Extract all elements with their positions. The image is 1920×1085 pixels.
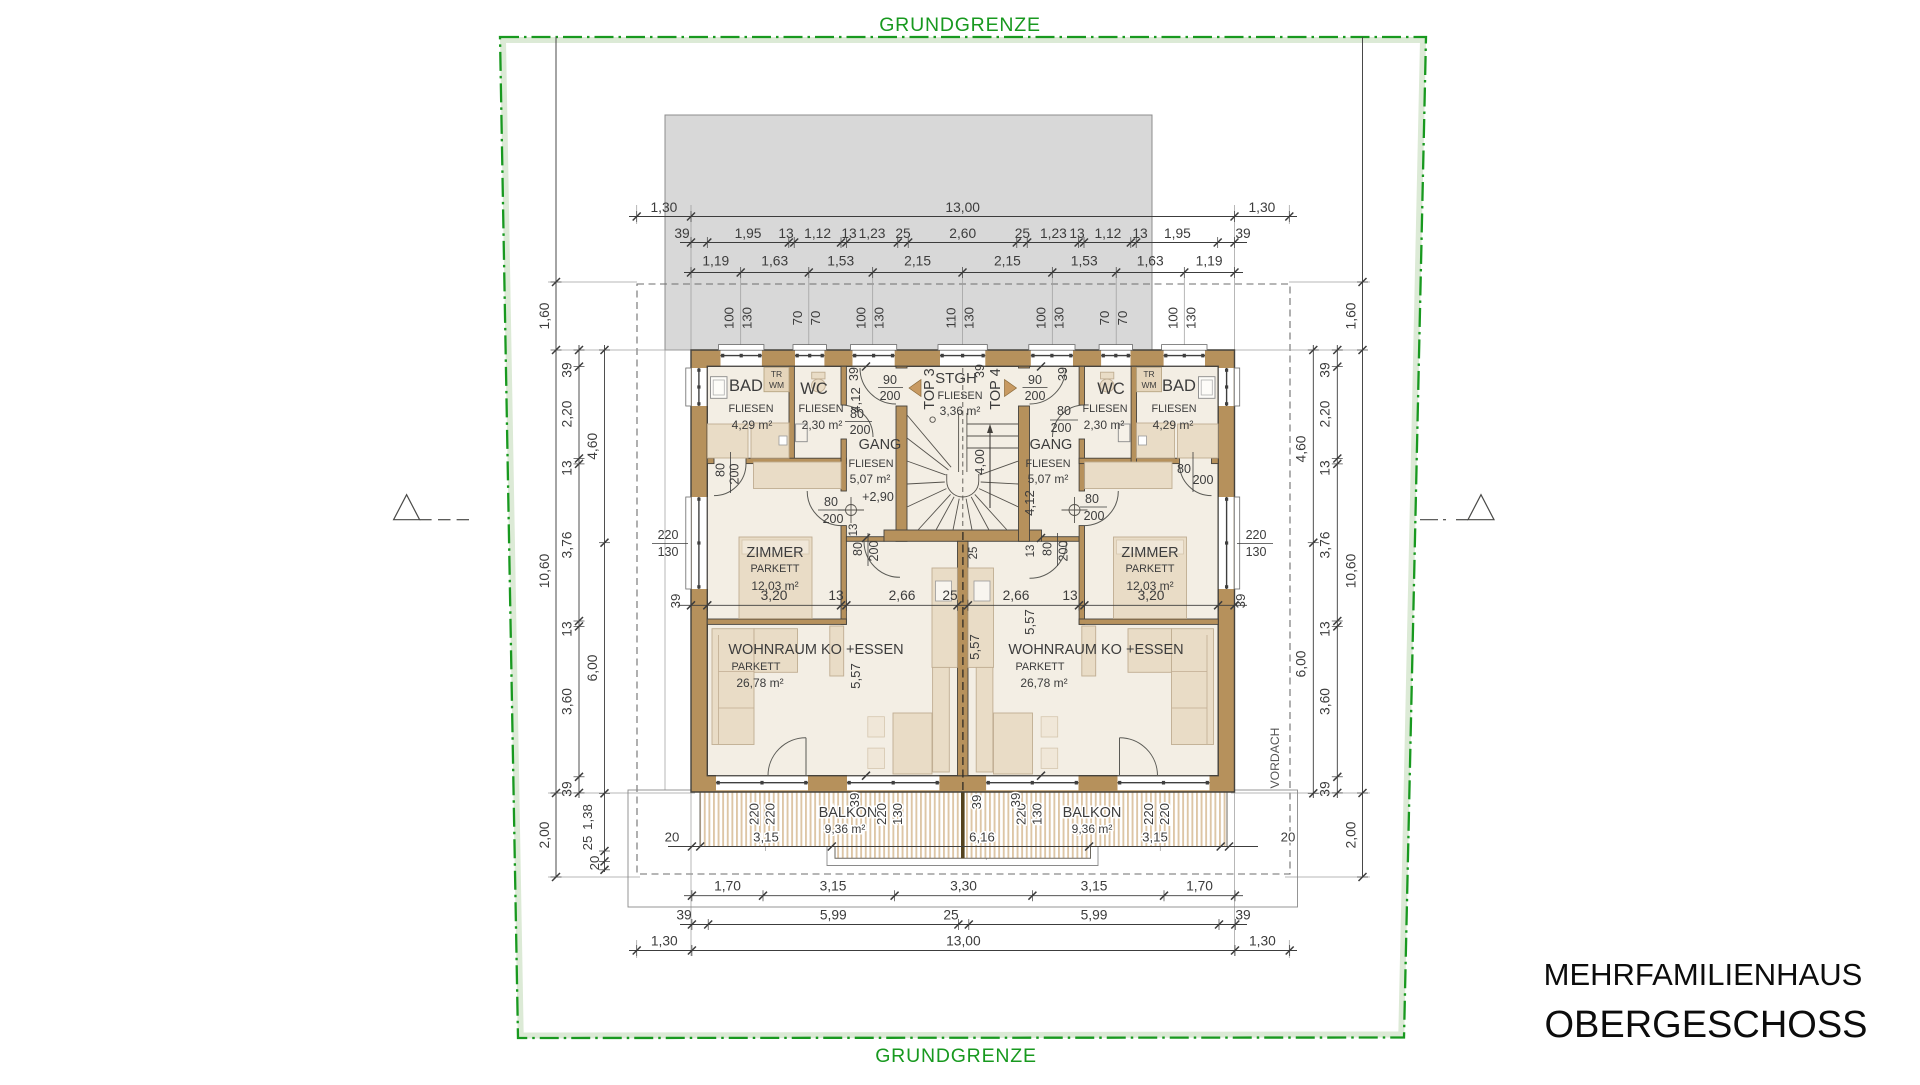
svg-text:6,00: 6,00 [585,654,600,681]
svg-text:80: 80 [851,542,865,556]
svg-text:110: 110 [944,307,959,328]
svg-text:1,30: 1,30 [651,934,678,949]
svg-text:20: 20 [587,856,602,871]
svg-text:1,63: 1,63 [1137,254,1164,269]
svg-text:GRUNDGRENZE: GRUNDGRENZE [875,1045,1037,1067]
svg-text:5,57: 5,57 [967,634,982,660]
svg-text:FLIESEN: FLIESEN [1025,458,1070,470]
svg-text:FLIESEN: FLIESEN [1082,403,1127,415]
svg-text:4,29 m²: 4,29 m² [1153,418,1194,432]
svg-text:FLIESEN: FLIESEN [798,403,843,415]
svg-text:39: 39 [1056,367,1070,381]
svg-text:13,00: 13,00 [946,934,981,949]
svg-text:10,60: 10,60 [537,553,552,588]
svg-text:3,60: 3,60 [1318,688,1333,715]
svg-text:39: 39 [668,594,683,609]
svg-text:39: 39 [1233,594,1248,609]
svg-text:13: 13 [1062,588,1078,603]
svg-text:3,76: 3,76 [1318,531,1333,558]
svg-text:220: 220 [763,803,778,825]
svg-text:FLIESEN: FLIESEN [728,403,773,415]
svg-text:4,60: 4,60 [585,433,600,460]
svg-text:3,15: 3,15 [753,830,779,845]
svg-text:13: 13 [828,588,844,603]
svg-text:200: 200 [867,541,881,562]
svg-text:MEHRFAMILIENHAUS: MEHRFAMILIENHAUS [1544,957,1863,992]
svg-text:200: 200 [1084,509,1105,523]
svg-text:FLIESEN: FLIESEN [937,390,982,402]
svg-text:39: 39 [676,908,692,923]
svg-text:130: 130 [962,307,977,329]
svg-text:3,20: 3,20 [761,588,788,603]
svg-text:13: 13 [1025,545,1037,558]
svg-text:80: 80 [1057,404,1071,418]
svg-text:2,20: 2,20 [560,400,575,427]
svg-text:4,12: 4,12 [1022,490,1037,516]
svg-text:1,12: 1,12 [1094,226,1121,241]
svg-text:1,30: 1,30 [650,200,677,215]
svg-text:130: 130 [1051,307,1066,329]
svg-text:3,20: 3,20 [1138,588,1165,603]
svg-text:1,60: 1,60 [1344,302,1359,329]
svg-text:10,60: 10,60 [1344,553,1359,588]
svg-text:200: 200 [728,464,742,485]
svg-text:4,29 m²: 4,29 m² [732,418,773,432]
svg-text:GRUNDGRENZE: GRUNDGRENZE [879,14,1041,36]
svg-text:WM: WM [769,380,784,390]
svg-text:4,12: 4,12 [848,387,863,413]
svg-text:2,30 m²: 2,30 m² [1084,418,1125,432]
svg-text:3,60: 3,60 [560,688,575,715]
svg-text:2,60: 2,60 [949,226,976,241]
svg-text:FLIESEN: FLIESEN [848,458,893,470]
svg-text:TR: TR [1143,369,1154,379]
svg-text:2,30 m²: 2,30 m² [802,418,843,432]
svg-text:PARKETT: PARKETT [732,661,781,673]
svg-text:1,63: 1,63 [761,254,788,269]
svg-text:200: 200 [1193,473,1214,487]
svg-text:100: 100 [722,307,737,329]
svg-text:220: 220 [1246,528,1267,542]
svg-text:1,19: 1,19 [702,254,729,269]
svg-text:1,53: 1,53 [1071,254,1098,269]
svg-text:TR: TR [771,369,782,379]
svg-text:2,15: 2,15 [994,254,1021,269]
svg-text:ZIMMER: ZIMMER [1121,545,1178,561]
svg-text:5,57: 5,57 [848,663,863,689]
svg-text:13,00: 13,00 [945,200,980,215]
svg-text:70: 70 [1115,311,1130,326]
svg-text:25: 25 [895,226,911,241]
svg-text:90: 90 [883,373,897,387]
svg-text:3,15: 3,15 [1142,830,1168,845]
svg-text:BALKON: BALKON [1063,805,1122,821]
svg-text:1,30: 1,30 [1249,934,1276,949]
svg-text:WC: WC [1097,380,1125,398]
svg-text:5,07 m²: 5,07 m² [850,472,891,486]
svg-text:130: 130 [890,803,905,825]
svg-text:PARKETT: PARKETT [1016,661,1065,673]
svg-text:39: 39 [560,781,575,797]
svg-text:130: 130 [1030,803,1045,825]
svg-text:80: 80 [1177,462,1191,476]
svg-text:13: 13 [1132,226,1148,241]
svg-text:5,99: 5,99 [1081,908,1108,923]
svg-text:26,78 m²: 26,78 m² [736,676,783,690]
svg-text:39: 39 [1235,908,1251,923]
svg-text:13: 13 [848,524,860,537]
svg-text:130: 130 [1246,545,1267,559]
svg-text:2,00: 2,00 [537,821,552,848]
svg-text:GANG: GANG [859,437,902,453]
svg-text:20: 20 [665,830,680,845]
svg-text:130: 130 [1183,307,1198,329]
svg-text:13: 13 [1069,226,1085,241]
svg-text:80: 80 [824,495,838,509]
svg-text:39: 39 [1008,793,1023,808]
svg-text:5,57: 5,57 [1022,609,1037,635]
svg-text:200: 200 [1057,541,1071,562]
svg-text:220: 220 [1141,803,1156,825]
svg-text:1,60: 1,60 [537,302,552,329]
svg-text:WC: WC [800,380,828,398]
svg-text:25: 25 [968,547,980,560]
svg-text:39: 39 [969,795,984,810]
svg-text:70: 70 [1097,311,1112,326]
svg-text:100: 100 [854,307,869,329]
svg-text:26,78 m²: 26,78 m² [1020,676,1067,690]
svg-text:STGH: STGH [935,370,977,387]
svg-text:BAD: BAD [1162,377,1196,395]
svg-text:130: 130 [658,545,679,559]
svg-text:20: 20 [1281,830,1296,845]
svg-text:200: 200 [880,389,901,403]
svg-text:1,38: 1,38 [580,804,595,830]
svg-text:13: 13 [560,621,575,637]
svg-text:6,00: 6,00 [1294,650,1309,677]
svg-text:220: 220 [658,528,679,542]
svg-text:70: 70 [790,311,805,326]
svg-text:13: 13 [560,460,575,476]
svg-text:200: 200 [850,423,871,437]
svg-text:130: 130 [872,307,887,329]
svg-text:39: 39 [560,362,575,378]
svg-text:1,70: 1,70 [1186,879,1213,894]
svg-text:2,66: 2,66 [1003,588,1030,603]
svg-text:VORDACH: VORDACH [1268,728,1282,789]
svg-text:1,23: 1,23 [1040,226,1067,241]
svg-text:25: 25 [942,588,958,603]
svg-text:BAD: BAD [729,377,763,395]
svg-text:ZIMMER: ZIMMER [746,545,803,561]
svg-text:100: 100 [1165,307,1180,329]
svg-text:2,15: 2,15 [904,254,931,269]
svg-text:9,36 m²: 9,36 m² [1072,822,1113,836]
svg-text:3,36 m²: 3,36 m² [940,404,981,418]
svg-text:39: 39 [973,364,987,378]
svg-text:5,07 m²: 5,07 m² [1028,472,1069,486]
svg-text:39: 39 [1318,781,1333,797]
svg-text:1,95: 1,95 [735,226,762,241]
svg-text:FLIESEN: FLIESEN [1151,403,1196,415]
svg-text:25: 25 [943,908,959,923]
svg-text:GANG: GANG [1030,437,1073,453]
svg-text:80: 80 [1041,542,1055,556]
svg-text:6,16: 6,16 [969,830,995,845]
svg-text:200: 200 [1025,389,1046,403]
svg-text:TOP 4: TOP 4 [988,368,1004,409]
svg-text:39: 39 [1318,362,1333,378]
svg-text:3,30: 3,30 [950,879,977,894]
svg-text:39: 39 [674,226,690,241]
svg-text:70: 70 [808,311,823,326]
svg-text:+2,90: +2,90 [862,490,894,504]
svg-text:PARKETT: PARKETT [1126,563,1175,575]
svg-text:100: 100 [1033,307,1048,329]
svg-text:13: 13 [1318,460,1333,476]
svg-text:2,20: 2,20 [1318,400,1333,427]
svg-text:1,53: 1,53 [827,254,854,269]
svg-text:39: 39 [1235,226,1251,241]
svg-text:200: 200 [1051,421,1072,435]
svg-text:25: 25 [580,836,595,851]
svg-text:1,30: 1,30 [1248,200,1275,215]
svg-text:80: 80 [1085,492,1099,506]
svg-text:3,76: 3,76 [560,531,575,558]
svg-text:1,23: 1,23 [859,226,886,241]
svg-text:220: 220 [747,803,762,825]
svg-text:39: 39 [847,793,862,808]
svg-text:9,36 m²: 9,36 m² [825,822,866,836]
svg-text:13: 13 [1318,621,1333,637]
svg-text:80: 80 [714,463,728,477]
svg-text:1,12: 1,12 [804,226,831,241]
svg-text:130: 130 [740,307,755,329]
svg-text:220: 220 [1157,803,1172,825]
svg-text:WOHNRAUM KO +ESSEN: WOHNRAUM KO +ESSEN [1008,642,1183,658]
svg-text:PARKETT: PARKETT [751,563,800,575]
svg-text:3,15: 3,15 [820,879,847,894]
svg-text:4,00: 4,00 [972,449,987,475]
svg-text:13: 13 [841,226,857,241]
svg-text:90: 90 [1028,373,1042,387]
svg-text:220: 220 [874,803,889,825]
svg-text:3,15: 3,15 [1081,879,1108,894]
svg-text:1,19: 1,19 [1196,254,1223,269]
svg-text:39: 39 [847,367,861,381]
svg-text:OBERGESCHOSS: OBERGESCHOSS [1544,1004,1867,1046]
svg-text:5,99: 5,99 [820,908,847,923]
svg-text:25: 25 [1015,226,1031,241]
svg-text:2,00: 2,00 [1344,821,1359,848]
svg-text:WM: WM [1141,380,1156,390]
svg-text:WOHNRAUM KO +ESSEN: WOHNRAUM KO +ESSEN [728,642,903,658]
svg-text:1,95: 1,95 [1164,226,1191,241]
svg-text:4,60: 4,60 [1294,435,1309,462]
svg-text:13: 13 [778,226,794,241]
svg-text:1,70: 1,70 [714,879,741,894]
svg-text:2,66: 2,66 [889,588,916,603]
svg-text:200: 200 [823,512,844,526]
